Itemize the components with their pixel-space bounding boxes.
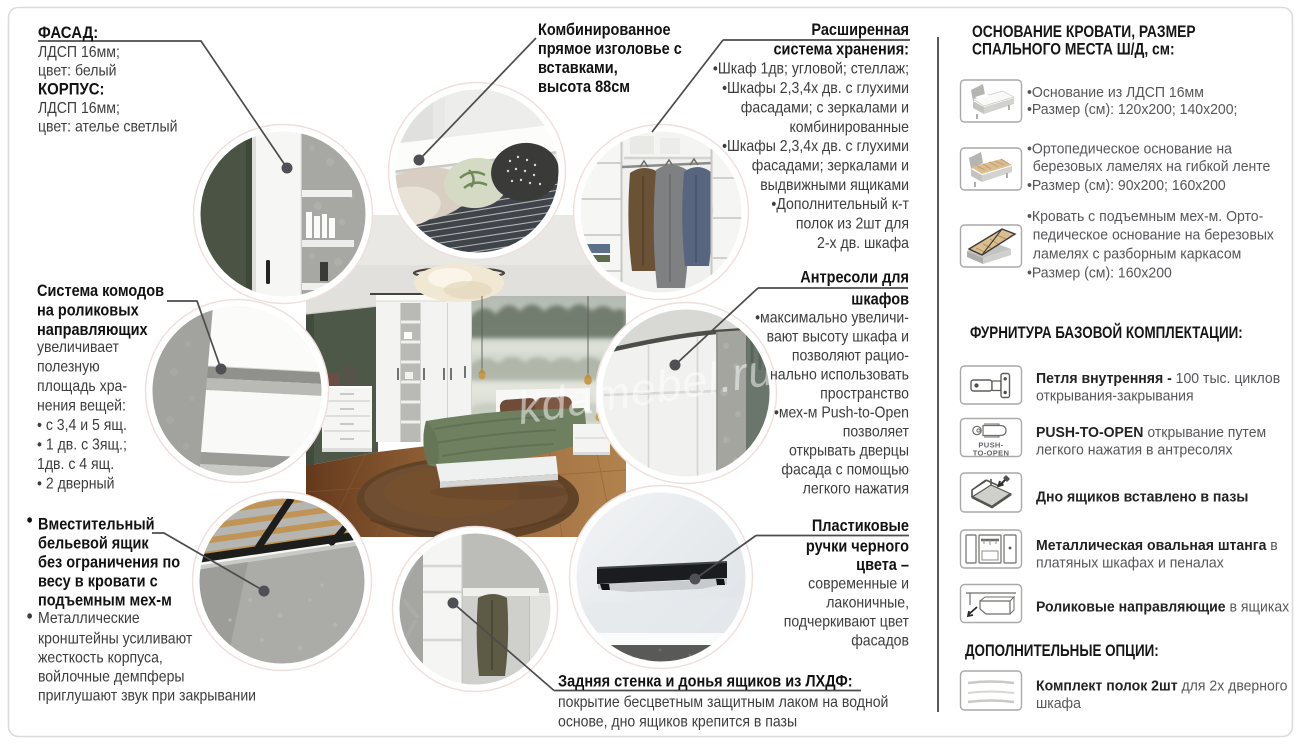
svg-text:покрытие бесцветным защитным л: покрытие бесцветным защитным лаком на во… [558,693,888,711]
svg-text:нально использовать: нально использовать [770,366,909,384]
svg-text:2-х дв. шкафа: 2-х дв. шкафа [817,234,910,252]
svg-text:лаконичные,: лаконичные, [826,594,909,612]
svg-text:войлочные демпферы: войлочные демпферы [38,668,185,686]
svg-text:•Основание из ЛДСП 16мм: •Основание из ЛДСП 16мм [1027,85,1204,101]
svg-text:выдвижными ящиками: выдвижными ящиками [760,176,909,194]
svg-text:Комбинированное: Комбинированное [538,21,671,39]
svg-text:Комплект полок 2шт для 2х двер: Комплект полок 2шт для 2х дверного [1036,678,1288,694]
svg-text:система хранения:: система хранения: [773,41,909,59]
svg-text:вают высоту шкафа и: вают высоту шкафа и [767,328,909,346]
svg-text:•мех-м Push-to-Open: •мех-м Push-to-Open [774,404,909,422]
svg-text:•Размер (см): 160х200: •Размер (см): 160х200 [1027,265,1172,281]
svg-text:основе, дно ящиков крепится в: основе, дно ящиков крепится в пазы [558,713,797,731]
svg-text:ФУРНИТУРА БАЗОВОЙ КОМПЛЕКТАЦИИ: ФУРНИТУРА БАЗОВОЙ КОМПЛЕКТАЦИИ: [970,322,1243,342]
svg-text:цвет: белый: цвет: белый [38,62,116,80]
svg-text:•Шкаф 1дв; угловой; стеллаж;: •Шкаф 1дв; угловой; стеллаж; [713,60,909,78]
svg-text:открывать дверцы: открывать дверцы [789,442,909,460]
svg-text:педическое основание на березо: педическое основание на березовых [1033,227,1274,243]
svg-text:кронштейны усиливают: кронштейны усиливают [38,630,192,648]
svg-text:ФАСАД:: ФАСАД: [38,24,98,42]
svg-text:площадь хра-: площадь хра- [37,377,127,395]
svg-text:•Шкафы 2,3,4х дв. с глухими: •Шкафы 2,3,4х дв. с глухими [722,137,909,155]
svg-text:ДОПОЛНИТЕЛЬНЫЕ ОПЦИИ:: ДОПОЛНИТЕЛЬНЫЕ ОПЦИИ: [965,642,1159,661]
svg-text:фасадами; зеркалами и: фасадами; зеркалами и [752,157,909,175]
svg-text:приглушают звук при закрывании: приглушают звук при закрывании [38,687,256,705]
svg-text:• 2 дверный: • 2 дверный [37,475,115,493]
svg-text:•Ортопедическое основание на: •Ортопедическое основание на [1027,141,1232,157]
svg-text:комбинированные: комбинированные [790,118,909,136]
svg-text:•Кровать с подъемным мех-м. Ор: •Кровать с подъемным мех-м. Орто- [1027,209,1264,225]
svg-text:СПАЛЬНОГО МЕСТА Ш/Д, см:: СПАЛЬНОГО МЕСТА Ш/Д, см: [972,40,1175,59]
svg-text:Задняя стенка и донья ящиков и: Задняя стенка и донья ящиков из ЛХДФ: [558,673,853,691]
svg-text:полезную: полезную [37,358,100,376]
svg-text:пространство: пространство [820,385,909,403]
svg-text:цвета –: цвета – [856,556,909,574]
svg-text:•максимально увеличи-: •максимально увеличи- [755,309,909,327]
svg-text:КОРПУС:: КОРПУС: [38,81,105,99]
svg-text:подчеркивают цвет: подчеркивают цвет [784,613,909,631]
svg-text:1дв. с 4 ящ.: 1дв. с 4 ящ. [37,455,114,473]
svg-text:подъемным мех-м: подъемным мех-м [38,592,172,610]
svg-text:легкого нажатия: легкого нажатия [803,480,909,498]
svg-text:на роликовых: на роликовых [37,302,139,320]
svg-text:березовых ламелях на гибкой ле: березовых ламелях на гибкой ленте [1033,159,1271,175]
svg-text:ОСНОВАНИЕ КРОВАТИ, РАЗМЕР: ОСНОВАНИЕ КРОВАТИ, РАЗМЕР [972,23,1196,42]
svg-text:легкого нажатия в антресолях: легкого нажатия в антресолях [1036,442,1233,458]
svg-text:позволяет: позволяет [843,423,909,441]
svg-text:фасадов: фасадов [851,632,909,650]
svg-text:цвет: ателье светлый: цвет: ателье светлый [38,118,177,136]
svg-text:Металлические: Металлические [38,609,140,627]
svg-text:шкафов: шкафов [851,291,909,309]
svg-text:увеличивает: увеличивает [37,338,119,356]
svg-text:без ограничения по: без ограничения по [38,554,180,572]
svg-text:Вместительный: Вместительный [38,516,155,534]
svg-text:шкафа: шкафа [1036,696,1081,712]
svg-text:ЛДСП 16мм;: ЛДСП 16мм; [38,43,120,61]
svg-text:•Шкафы 2,3,4х дв. с глухими: •Шкафы 2,3,4х дв. с глухими [722,79,909,97]
svg-text:ламелях с разборным каркасом: ламелях с разборным каркасом [1033,246,1242,262]
svg-text:фасада с помощью: фасада с помощью [781,461,909,479]
svg-text:Антресоли для: Антресоли для [800,269,909,287]
svg-text:•Размер (см): 120х200; 140х200: •Размер (см): 120х200; 140х200; [1027,102,1237,118]
svg-text:современные и: современные и [808,575,909,593]
svg-text:нения вещей:: нения вещей: [37,397,126,415]
svg-text:•Размер (см): 90х200; 160х200: •Размер (см): 90х200; 160х200 [1027,178,1226,194]
svg-text:ЛДСП 16мм;: ЛДСП 16мм; [38,99,120,117]
svg-text:TO-OPEN: TO-OPEN [973,449,1010,458]
svg-text:направляющих: направляющих [37,321,148,339]
svg-text:• с 3,4 и 5 ящ.: • с 3,4 и 5 ящ. [37,416,127,434]
svg-text:высота 88см: высота 88см [538,78,630,96]
svg-text:•Дополнительный к-т: •Дополнительный к-т [771,195,909,213]
svg-text:открывания-закрывания: открывания-закрывания [1036,388,1194,404]
svg-text:вставками,: вставками, [538,59,618,77]
svg-text:Пластиковые: Пластиковые [812,517,909,535]
svg-text:ручки черного: ручки черного [806,538,909,556]
svg-text:полок из 2шт для: полок из 2шт для [796,215,909,233]
svg-text:прямое изголовье с: прямое изголовье с [538,40,682,58]
svg-text:Петля внутренняя - 100 тыс. ци: Петля внутренняя - 100 тыс. циклов [1036,371,1280,387]
svg-text:позволяют рацио-: позволяют рацио- [792,347,909,365]
svg-text:• 1 дв. с 3ящ.;: • 1 дв. с 3ящ.; [37,436,127,454]
svg-text:Система комодов: Система комодов [37,282,164,300]
svg-text:Роликовые направляющие в ящика: Роликовые направляющие в ящиках [1036,599,1289,615]
svg-text:бельевой ящик: бельевой ящик [38,535,149,553]
svg-text:Дно ящиков вставлено в пазы: Дно ящиков вставлено в пазы [1036,489,1248,505]
svg-text:PUSH-TO-OPEN открывание путем: PUSH-TO-OPEN открывание путем [1036,425,1266,441]
svg-text:Металлическая овальная штанга: Металлическая овальная штанга в [1036,538,1278,554]
svg-text:фасадами; с зеркалами и: фасадами; с зеркалами и [741,99,909,117]
svg-text:платяных шкафах и пеналах: платяных шкафах и пеналах [1036,555,1224,571]
svg-text:весу в кровати с: весу в кровати с [38,573,158,591]
svg-text:Расширенная: Расширенная [811,21,909,39]
svg-text:жесткость корпуса,: жесткость корпуса, [38,649,163,667]
